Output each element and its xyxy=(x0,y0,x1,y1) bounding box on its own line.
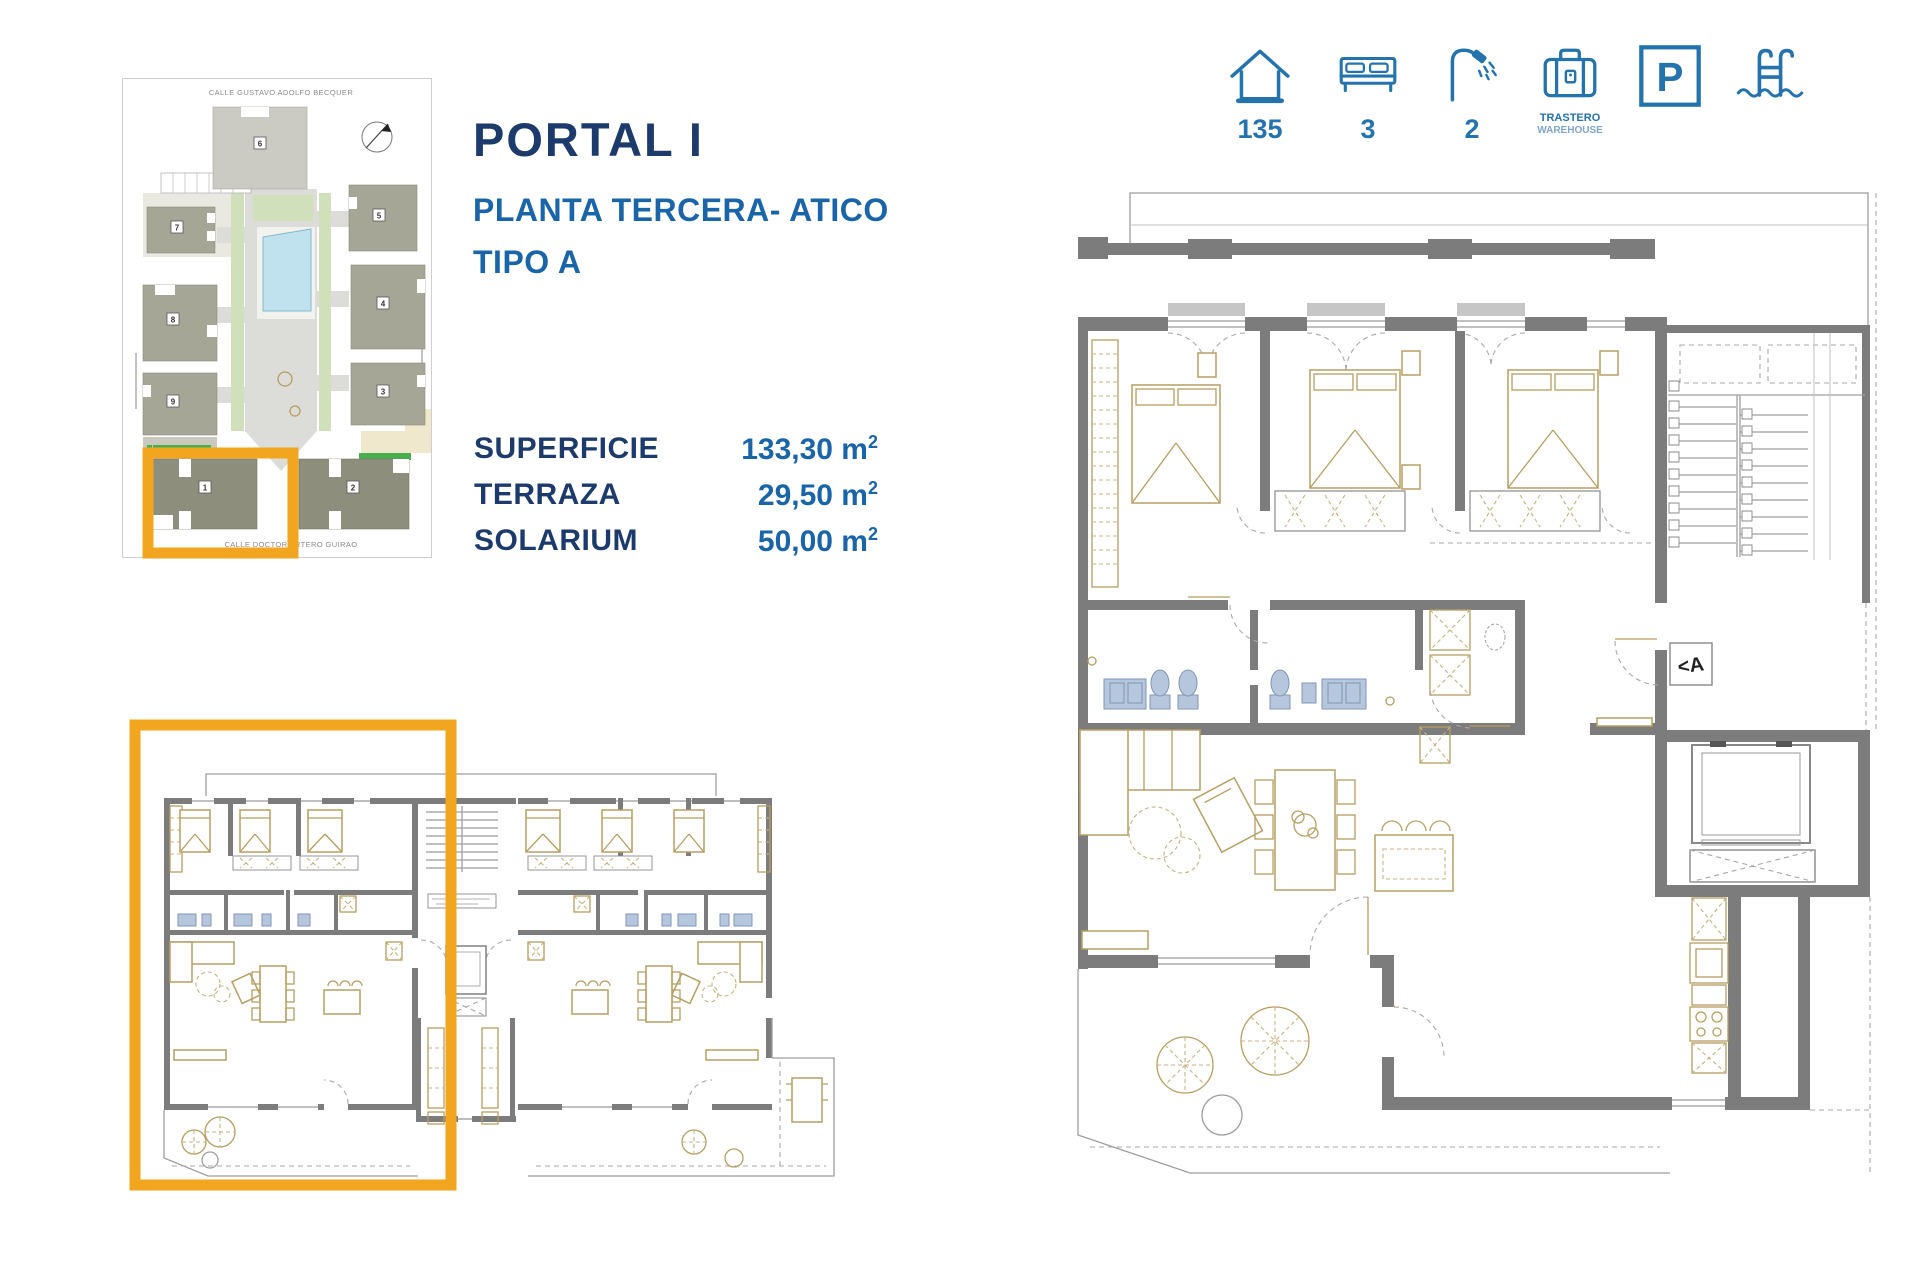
site-plan-drawing: CALLE GUSTAVO ADOLFO BECQUER xyxy=(123,79,431,557)
pool xyxy=(263,229,311,311)
building-number-8: 8 xyxy=(171,316,176,325)
amenity-bedrooms: 3 xyxy=(1320,42,1416,145)
building-number-5: 5 xyxy=(377,212,382,221)
building-number-4: 4 xyxy=(381,300,386,309)
wardrobes xyxy=(233,856,358,870)
compass-icon xyxy=(362,122,392,152)
suitcase-icon xyxy=(1535,42,1605,108)
area-value: 29,50 m2 xyxy=(758,478,878,513)
area-label: SOLARIUM xyxy=(474,524,638,559)
building-number-7: 7 xyxy=(175,224,180,233)
stairwell xyxy=(1665,325,1870,603)
amenity-bathrooms-value: 2 xyxy=(1424,114,1520,145)
bedroom-2 xyxy=(1275,351,1420,531)
elevator xyxy=(1655,730,1870,897)
brochure-page: CALLE GUSTAVO ADOLFO BECQUER xyxy=(0,0,1920,1280)
page-title: PORTAL I xyxy=(473,112,704,167)
site-plan-card: CALLE GUSTAVO ADOLFO BECQUER xyxy=(122,78,432,558)
building-number-6: 6 xyxy=(258,140,263,149)
section-marker-label: <A xyxy=(1676,653,1705,678)
wardrobe xyxy=(1470,491,1600,531)
bedroom-1 xyxy=(1092,340,1220,587)
parking-icon: P xyxy=(1636,42,1704,110)
amenity-storage-label-es: TRASTERO xyxy=(1522,112,1618,125)
shower-icon xyxy=(1439,42,1505,108)
left-unit xyxy=(164,798,418,1176)
area-value: 133,30 m2 xyxy=(741,432,878,467)
pool-ladder-icon xyxy=(1734,42,1806,110)
hob xyxy=(1690,1007,1728,1041)
amenity-bedrooms-value: 3 xyxy=(1320,114,1416,145)
amenity-parking: P xyxy=(1622,42,1718,110)
terrace xyxy=(1078,897,1870,1175)
kitchen xyxy=(1690,897,1741,1110)
armchair xyxy=(1194,778,1263,853)
living-room xyxy=(1080,727,1453,949)
street-left-microtext xyxy=(135,353,137,409)
entry-threshold xyxy=(1597,718,1652,726)
solarium-parapet xyxy=(1078,237,1655,259)
parking-letter: P xyxy=(1657,54,1684,100)
building-number-9: 9 xyxy=(171,398,176,407)
tv-sideboard xyxy=(1082,931,1148,949)
area-value: 50,00 m2 xyxy=(758,524,878,559)
building-2 xyxy=(299,459,409,529)
area-label: TERRAZA xyxy=(474,478,621,513)
central-core xyxy=(416,798,516,1124)
amenity-bathrooms: 2 xyxy=(1424,42,1520,145)
building-number-3: 3 xyxy=(381,388,386,397)
shower-room xyxy=(1430,610,1510,728)
main-floor-plan: <A xyxy=(1070,185,1880,1235)
plant xyxy=(1241,1007,1309,1075)
floor-overview-plan xyxy=(128,718,888,1248)
amenity-house: 135 xyxy=(1212,42,1308,145)
coffee-table xyxy=(1129,807,1181,859)
entry-hall: <A xyxy=(1597,603,1866,730)
type-subtitle: TIPO A xyxy=(473,244,581,281)
kitchen-island xyxy=(1375,821,1453,891)
amenity-storage-label-en: WAREHOUSE xyxy=(1522,125,1618,137)
building-number-1: 1 xyxy=(203,484,208,493)
street-top-label: CALLE GUSTAVO ADOLFO BECQUER xyxy=(209,88,353,97)
building-number-2: 2 xyxy=(351,484,356,493)
terrace-door xyxy=(1310,897,1444,1057)
plant xyxy=(1157,1037,1213,1093)
core-label-box xyxy=(428,894,496,908)
floor-subtitle: PLANTA TERCERA- ATICO xyxy=(473,192,889,229)
amenity-storage: TRASTERO WAREHOUSE xyxy=(1522,42,1618,137)
roof-outline xyxy=(1130,193,1876,730)
amenity-pool xyxy=(1722,42,1818,110)
bathroom-1 xyxy=(1088,657,1198,709)
house-icon xyxy=(1227,42,1293,108)
amenity-house-value: 135 xyxy=(1212,114,1308,145)
area-row-solarium: SOLARIUM 50,00 m2 xyxy=(474,524,878,559)
wardrobe xyxy=(1275,491,1405,531)
right-unit xyxy=(518,798,834,1176)
bedroom-3 xyxy=(1470,351,1618,531)
area-label: SUPERFICIE xyxy=(474,432,659,467)
bedroom-window-wall xyxy=(1078,317,1665,372)
dining-table xyxy=(1255,770,1355,890)
bed-icon xyxy=(1335,42,1401,108)
bathroom-2 xyxy=(1270,670,1394,709)
area-row-terraza: TERRAZA 29,50 m2 xyxy=(474,478,878,513)
area-row-superficie: SUPERFICIE 133,30 m2 xyxy=(474,432,878,467)
